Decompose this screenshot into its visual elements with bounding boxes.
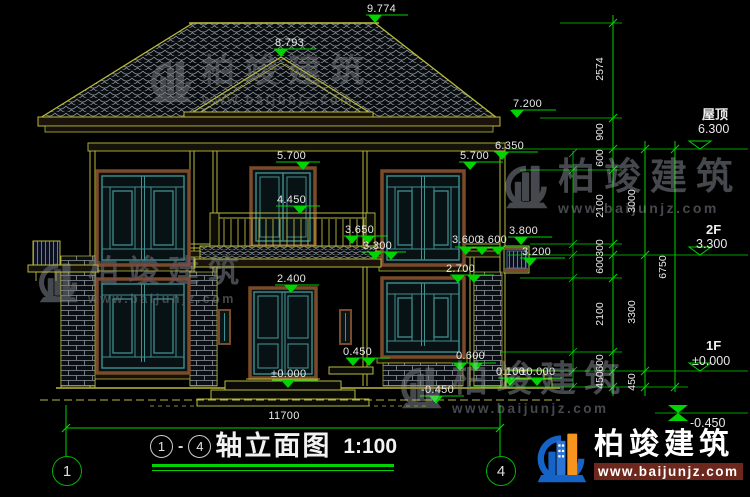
dim-door-top: 2.400 <box>277 273 306 285</box>
dim-stair-window-bottom: 3.200 <box>522 246 551 258</box>
title-name: 轴立面图 <box>215 433 331 460</box>
dim-sill-right: 0.600 <box>456 350 485 362</box>
axis-bubble-4: 4 <box>486 456 516 486</box>
entrance-door <box>246 288 320 379</box>
dim-stair-window-top: 3.800 <box>509 225 538 237</box>
window-2f-right <box>382 171 464 265</box>
level-1f-name: 1F <box>706 338 721 353</box>
dim-floor2: 3.300 <box>363 240 392 252</box>
title-underline <box>152 464 394 467</box>
dim-band-left: 3.600 <box>452 234 481 246</box>
dim-balcony-rail: 4.450 <box>277 194 306 206</box>
axis-bubble-1: 1 <box>52 456 82 486</box>
window-1f-right <box>382 278 464 357</box>
level-2f-name: 2F <box>706 222 721 237</box>
dim-band-right: 3.600 <box>478 234 507 246</box>
title-underline-thin <box>152 470 394 472</box>
drawing-title: 1 - 4 轴立面图 1:100 <box>150 433 397 460</box>
dim-overall-width: 11700 <box>262 410 306 422</box>
vdim-2574: 2574 <box>594 47 608 91</box>
dim-eave-secondary: 6.350 <box>495 140 524 152</box>
dim-ground-right: ±0.000 <box>520 366 555 378</box>
dim-ridge-main: 9.774 <box>367 3 396 15</box>
dim-ground-center: -0.450 <box>421 384 454 396</box>
vdim-450b: 450 <box>626 360 640 404</box>
cad-elevation-screenshot: 柏竣建筑 www.baijunjz.com 柏竣建筑 www.baijunjz.… <box>0 0 750 497</box>
window-2f-left <box>97 171 189 265</box>
window-1f-left <box>97 279 189 373</box>
dim-eave-main: 7.200 <box>513 98 542 110</box>
dim-ledge: 0.450 <box>343 346 372 358</box>
level-2f-elev: 3.300 <box>696 237 727 251</box>
level-roof-elev: 6.300 <box>698 122 729 136</box>
vdim-6750: 6750 <box>657 245 671 289</box>
brand-url: www.baijunjz.com <box>594 463 743 480</box>
dim-window1f-top: 2.700 <box>446 263 475 275</box>
vdim-3000: 3000 <box>626 179 640 223</box>
axis-number: 4 <box>497 463 505 480</box>
porch-roof <box>195 246 381 267</box>
dim-door-level: ±0.000 <box>271 368 306 380</box>
vdim-450a: 450 <box>594 358 608 402</box>
title-axis-start: 1 <box>150 435 173 458</box>
title-separator: - <box>178 438 183 456</box>
dim-window-top-right: 5.700 <box>460 150 489 162</box>
vdim-3300: 3300 <box>626 290 640 334</box>
level-1f-elev: ±0.000 <box>692 354 730 368</box>
title-axis-end: 4 <box>188 435 211 458</box>
brand-logo: 柏竣建筑 www.baijunjz.com <box>534 428 743 486</box>
main-eave-cornice <box>38 117 505 151</box>
ledge <box>329 367 373 374</box>
level-roof-name: 屋顶 <box>702 104 728 123</box>
level-ground-elev: -0.450 <box>690 416 725 430</box>
dim-porch-eave: 3.650 <box>345 224 374 236</box>
brand-name: 柏竣建筑 <box>594 428 743 461</box>
dim-window-top-center: 5.700 <box>277 150 306 162</box>
vdim-2100a: 2100 <box>594 184 608 228</box>
axis-number: 1 <box>63 463 71 480</box>
vdim-2100b: 2100 <box>594 292 608 336</box>
dim-ridge-front: 8.793 <box>275 37 304 49</box>
vdim-600b: 600 <box>594 243 608 287</box>
baijun-color-logo-icon <box>534 428 588 486</box>
vdim-600a: 600 <box>594 136 608 180</box>
title-scale: 1:100 <box>343 435 397 459</box>
